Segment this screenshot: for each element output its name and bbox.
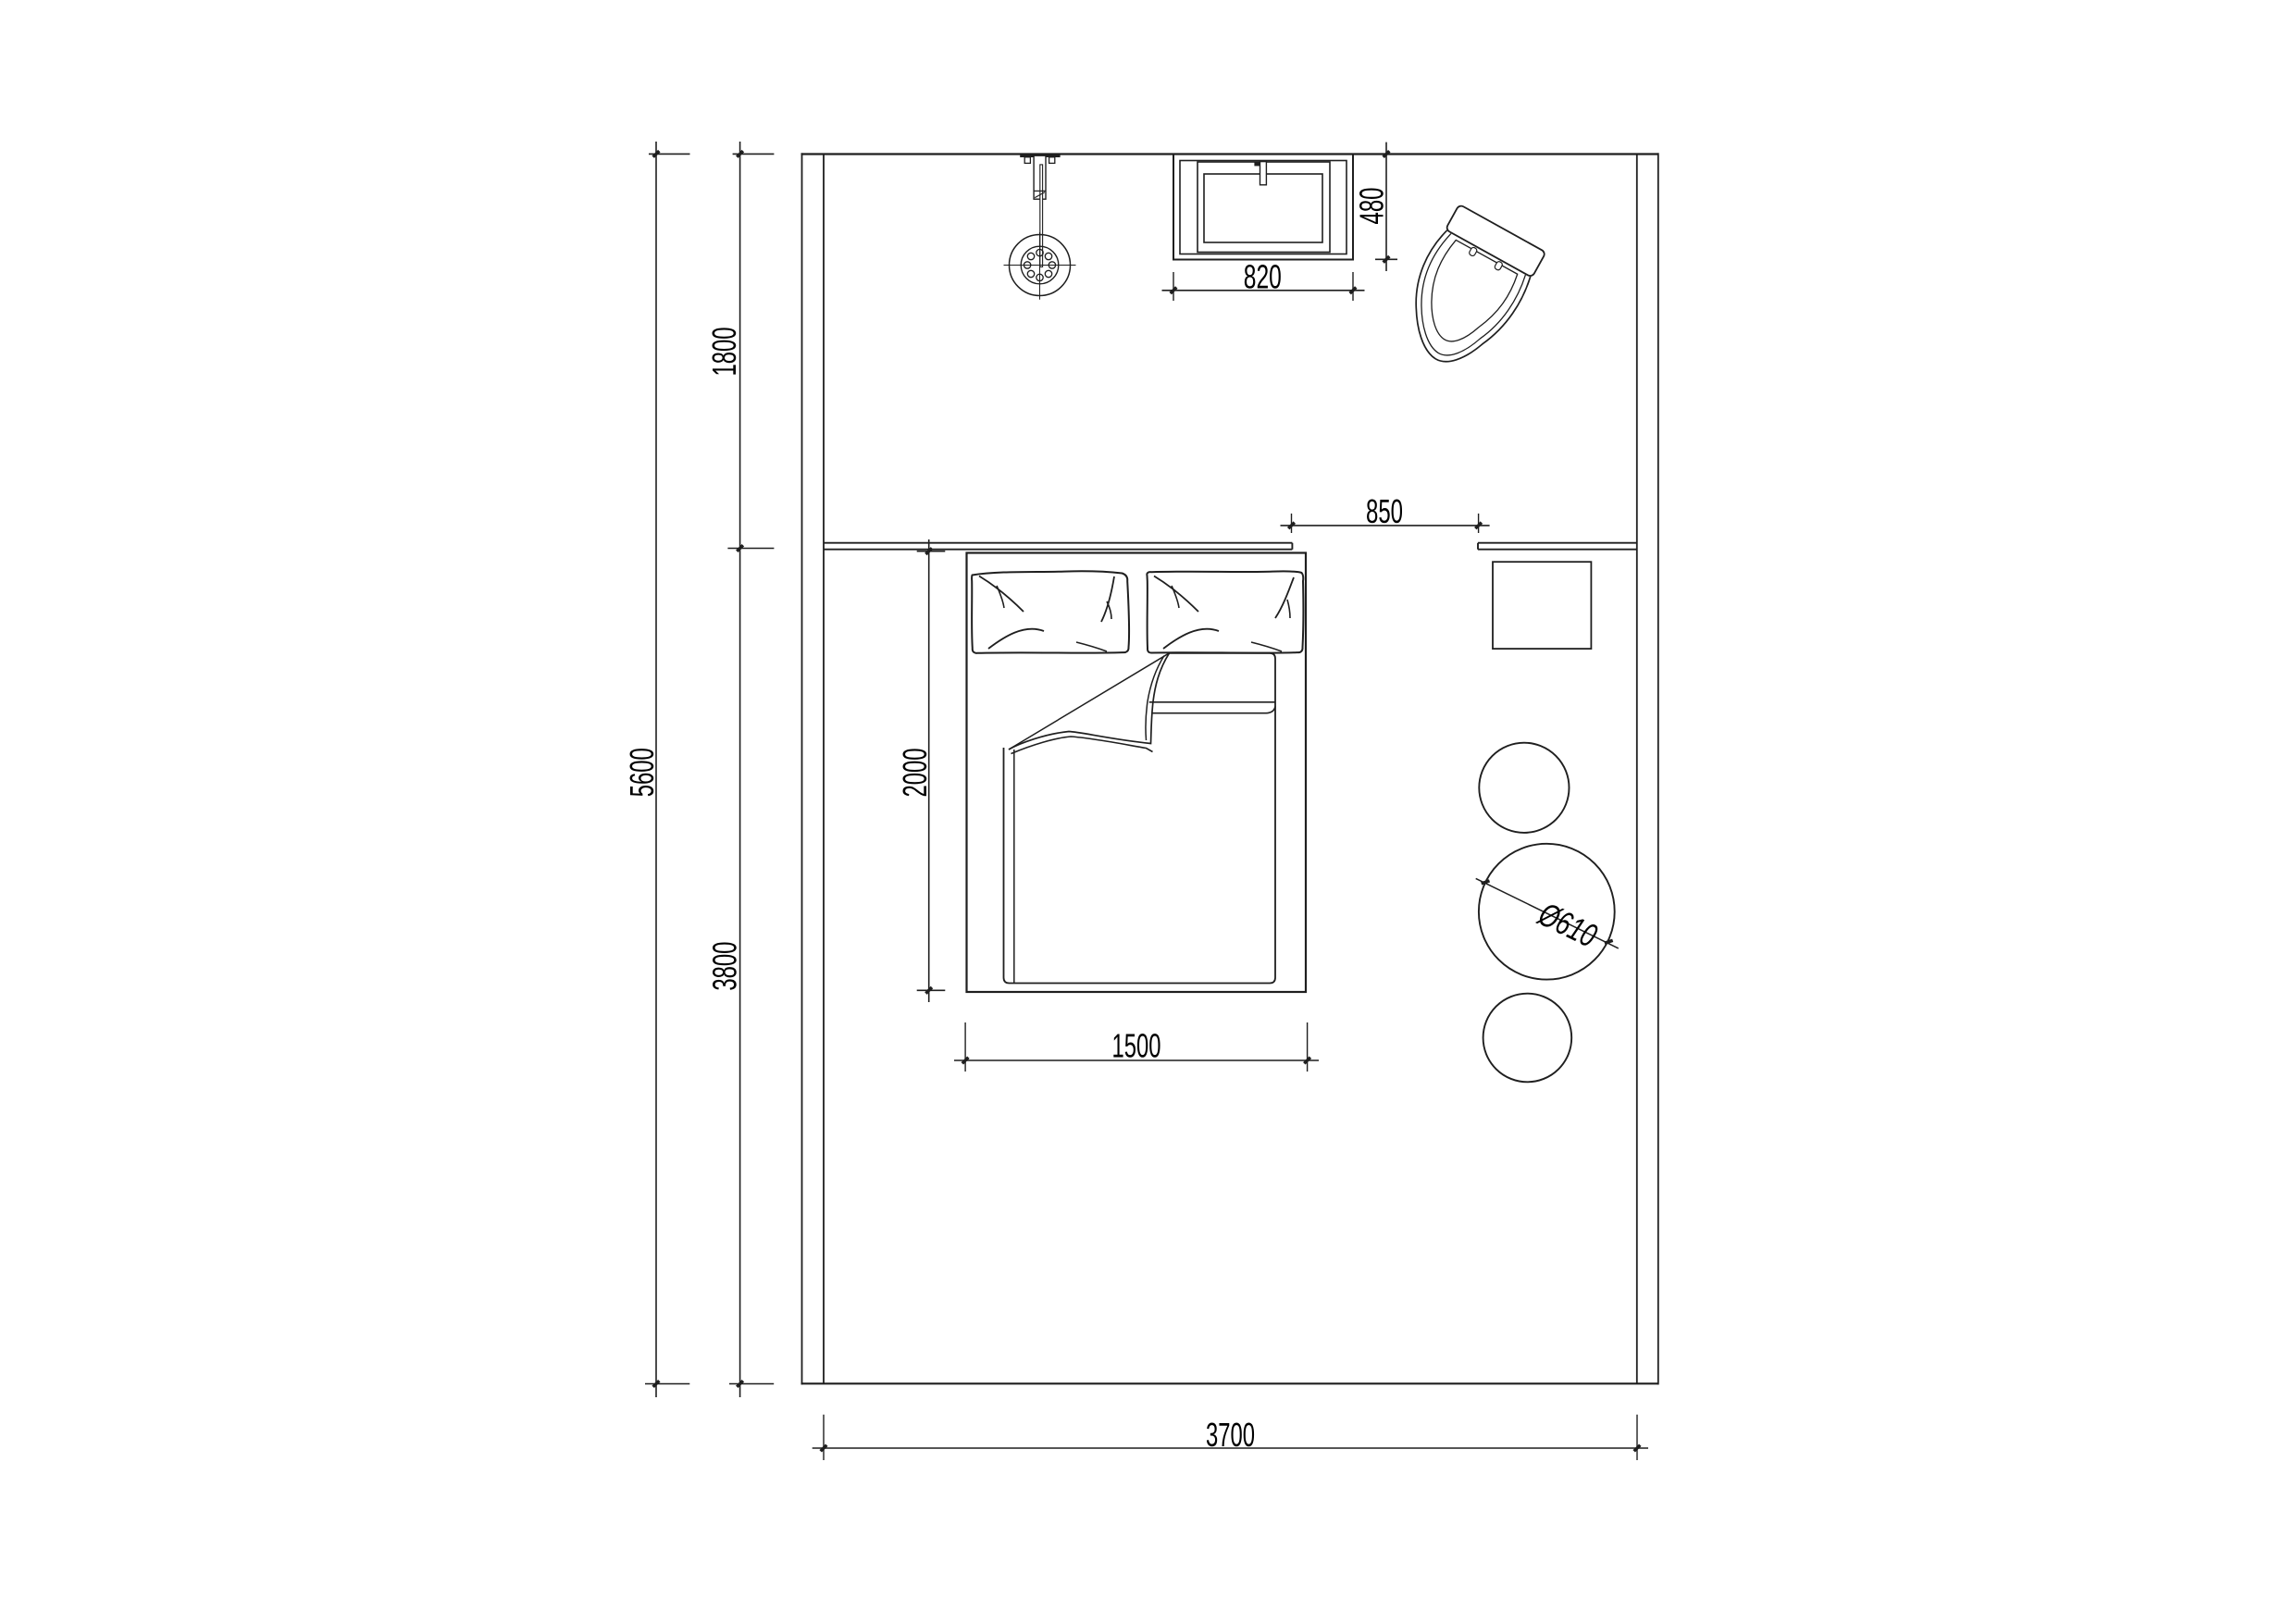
- svg-text:1500: 1500: [1112, 1027, 1161, 1065]
- svg-text:3700: 3700: [1206, 1416, 1255, 1454]
- svg-text:5600: 5600: [623, 748, 661, 797]
- svg-text:3800: 3800: [705, 942, 743, 991]
- svg-text:1800: 1800: [705, 328, 743, 377]
- svg-text:2000: 2000: [896, 749, 934, 798]
- svg-text:Ø610: Ø610: [1533, 895, 1603, 955]
- svg-text:820: 820: [1244, 257, 1282, 295]
- svg-text:850: 850: [1366, 492, 1403, 530]
- svg-text:480: 480: [1353, 188, 1391, 225]
